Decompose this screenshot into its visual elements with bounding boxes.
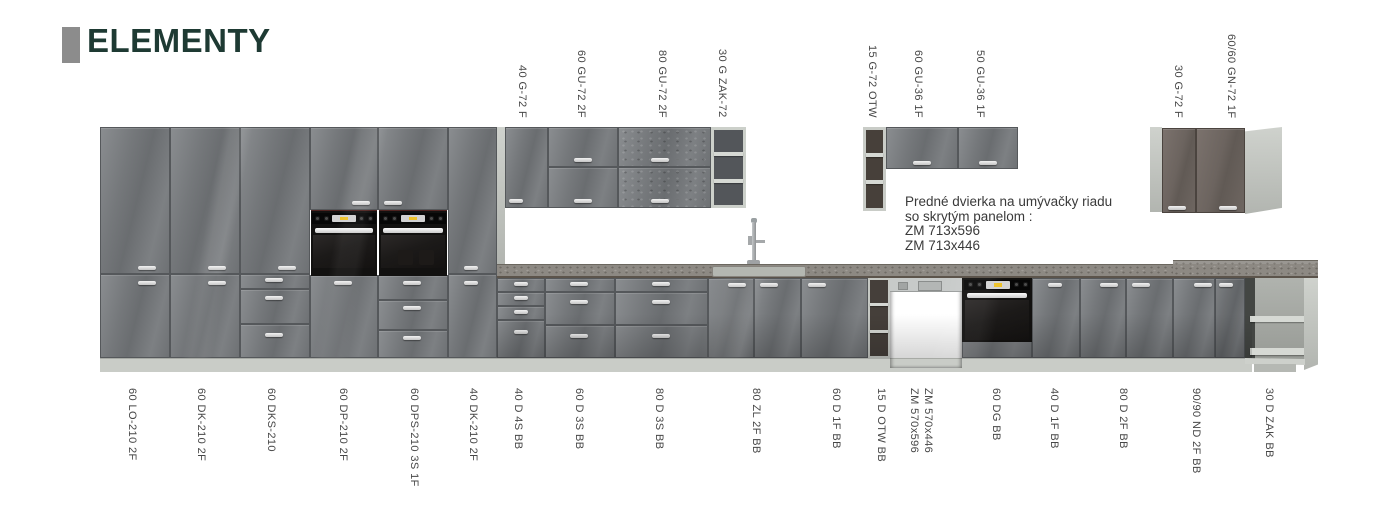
tall-cabinet-60-DP-210-2F-top-door	[310, 127, 378, 210]
tall-cabinet-60-DP-210-2F-bottom-door	[310, 275, 378, 358]
oven-handle	[315, 228, 373, 233]
door-handle	[464, 266, 478, 270]
faucet-spout	[756, 240, 765, 243]
door-handle	[352, 201, 370, 205]
shelf	[866, 180, 883, 184]
drawer-handle	[514, 282, 528, 286]
label-80-D-2F-BB: 80 D 2F BB	[1117, 388, 1129, 449]
tall-cabinet-60-DPS-210-drawer-1	[378, 275, 448, 300]
label-60-DK-210-2F: 60 DK-210 2F	[195, 388, 207, 461]
oven-knob	[1023, 282, 1028, 287]
drawer-handle	[514, 330, 528, 334]
label-60-DKS-210: 60 DKS-210	[265, 388, 277, 452]
oven-glass	[381, 235, 445, 268]
tall-cabinet-40-DK-210-2F-bottom-door	[448, 274, 497, 358]
door-handle	[138, 266, 156, 270]
base-cabinet-80-D-3S-drawer-3	[615, 325, 708, 358]
shelf	[714, 179, 743, 183]
door-handle	[509, 199, 523, 203]
base-cabinet-60-D-1F-door	[801, 278, 868, 358]
dishwasher-front-note: Predné dvierka na umývačky riadu so skry…	[905, 195, 1112, 253]
drawer-handle	[265, 278, 283, 282]
label-60-DPS-210-3S-1F: 60 DPS-210 3S 1F	[408, 388, 420, 487]
door-handle	[208, 281, 226, 285]
label-60-D-3S-BB: 60 D 3S BB	[573, 388, 585, 449]
drawer-handle	[652, 334, 670, 338]
tall-cabinet-60-DKS-210-door	[240, 127, 310, 274]
drawer-handle	[514, 310, 528, 314]
shelf	[714, 152, 743, 156]
faucet-lever	[748, 236, 752, 245]
label-60-60-GN-72-1F: 60/60 GN-72 1F	[1225, 34, 1237, 118]
drawer-handle	[570, 282, 588, 286]
drawer-handle	[265, 333, 283, 337]
label-15-G-72-OTW: 15 G-72 OTW	[866, 45, 878, 118]
base-cabinet-60-D-3S-drawer-3	[545, 325, 615, 358]
door-handle	[574, 199, 592, 203]
oven-glass	[313, 235, 375, 268]
label-60-GU-72-2F: 60 GU-72 2F	[575, 50, 587, 118]
base-cabinet-60-D-3S-drawer-2	[545, 292, 615, 325]
base-cabinet-80-D-2F-right-door	[1126, 278, 1173, 358]
tall-cabinet-60-DK-210-2F-top-door	[170, 127, 240, 274]
label-60-DG-BB: 60 DG BB	[990, 388, 1002, 441]
dishwasher-button	[898, 282, 908, 290]
tall-cabinet-60-DPS-210-drawer-3	[378, 330, 448, 358]
oven-knob	[968, 282, 973, 287]
shelf	[1250, 348, 1308, 355]
door-handle	[334, 281, 352, 285]
door-handle	[808, 283, 826, 287]
label-80-GU-72-2F: 80 GU-72 2F	[656, 50, 668, 118]
wall-open-shelf-15-G-72-OTW	[863, 127, 886, 211]
oven-knob	[392, 216, 397, 221]
door-handle	[728, 283, 746, 287]
oven-knob	[1014, 282, 1019, 287]
door-handle	[760, 283, 778, 287]
tall-cabinet-60-LO-210-2F-bottom-door	[100, 274, 170, 358]
dishwasher-panel	[890, 292, 962, 368]
oven-display	[401, 215, 425, 222]
catalog-page: ELEMENTY	[0, 0, 1382, 512]
door-handle	[1168, 206, 1186, 210]
tall-cabinet-60-DPS-210-drawer-2	[378, 300, 448, 330]
drawer-handle	[403, 336, 421, 340]
note-line: ZM 713x446	[905, 239, 1112, 254]
wall-open-shelf-30-G-ZAK-72	[711, 127, 746, 208]
tall-cabinet-60-LO-210-2F-top-door	[100, 127, 170, 274]
door-handle	[464, 281, 478, 285]
oven-handle	[383, 228, 443, 233]
end-panel	[1304, 278, 1318, 370]
label-ZM-570x446: ZM 570x446	[922, 388, 934, 453]
door-handle	[138, 281, 156, 285]
note-line: Predné dvierka na umývačky riadu	[905, 195, 1112, 210]
oven-knob	[324, 216, 329, 221]
door-handle	[1132, 283, 1150, 287]
oven-glass	[965, 300, 1029, 340]
label-60-D-1F-BB: 60 D 1F BB	[830, 388, 842, 449]
base-cabinet-80-D-2F-left-door	[1080, 278, 1126, 358]
tall-cabinet-60-DKS-210-drawer-3	[240, 324, 310, 358]
dishwasher-display	[918, 281, 942, 291]
drawer-handle	[265, 296, 283, 300]
tall-cabinet-60-DPS-210-top-door	[378, 127, 448, 210]
label-40-DK-210-2F: 40 DK-210 2F	[467, 388, 479, 461]
drawer-handle	[403, 306, 421, 310]
sink-cabinet-80-ZL-2F-left-door	[708, 278, 754, 358]
oven-display-light	[409, 217, 417, 220]
cup-silhouette	[419, 250, 434, 265]
wall-cabinet-30-G-72-F-door	[1162, 128, 1196, 213]
door-handle	[1219, 206, 1237, 210]
open-end-unit-plinth	[1254, 364, 1296, 372]
faucet-stem	[752, 222, 756, 264]
label-60-LO-210-2F: 60 LO-210 2F	[126, 388, 138, 461]
base-cabinet-40-D-1F-door	[1032, 278, 1080, 358]
drawer-handle	[514, 296, 528, 300]
door-handle	[1048, 283, 1062, 287]
plinth	[100, 358, 1252, 372]
drawer-handle	[403, 281, 421, 285]
door-handle	[979, 161, 997, 165]
page-title: ELEMENTY	[87, 22, 271, 60]
end-panel	[1150, 127, 1162, 212]
drawer-handle	[652, 282, 670, 286]
corner-base-90-90-ND-right-door	[1215, 278, 1245, 358]
door-handle	[208, 266, 226, 270]
label-30-D-ZAK-BB: 30 D ZAK BB	[1263, 388, 1275, 458]
base-open-shelf-15-D-OTW	[868, 278, 890, 358]
door-handle	[1194, 283, 1212, 287]
door-handle	[384, 201, 402, 205]
label-60-DP-210-2F: 60 DP-210 2F	[337, 388, 349, 461]
label-30-G-72-F: 30 G-72 F	[1172, 65, 1184, 118]
note-line: so skrytým panelom :	[905, 210, 1112, 225]
end-panel	[497, 127, 505, 265]
oven-knob	[368, 216, 373, 221]
oven-handle	[967, 293, 1027, 298]
label-40-D-1F-BB: 40 D 1F BB	[1048, 388, 1060, 449]
wall-cabinet-40-G-72-F-door	[505, 127, 548, 208]
tall-cabinet-60-DKS-210-drawer-2	[240, 289, 310, 324]
label-80-ZL-2F-BB: 80 ZL 2F BB	[750, 388, 762, 454]
sink-cabinet-80-ZL-2F-right-door	[754, 278, 801, 358]
oven-display-light	[340, 217, 348, 220]
door-handle	[1100, 283, 1118, 287]
door-handle	[651, 158, 669, 162]
label-90-90-ND-2F-BB: 90/90 ND 2F BB	[1190, 388, 1202, 474]
built-in-oven	[311, 210, 377, 276]
built-in-oven	[379, 210, 447, 276]
sink	[712, 266, 806, 277]
base-cabinet-40-D-4S-drawer-4	[497, 320, 545, 358]
dishwasher	[890, 278, 962, 368]
shelf	[866, 153, 883, 157]
label-ZM-570x596: ZM 570x596	[908, 388, 920, 453]
shelf	[870, 303, 888, 306]
base-cabinet-80-D-3S-drawer-2	[615, 292, 708, 325]
door-handle	[651, 199, 669, 203]
oven-display	[986, 281, 1010, 289]
label-50-GU-36-1F: 50 GU-36 1F	[974, 50, 986, 118]
corner-base-90-90-ND-left-door	[1173, 278, 1215, 358]
brand-bar	[62, 27, 80, 63]
note-line: ZM 713x596	[905, 224, 1112, 239]
wall-corner-cabinet-60-60-GN-72-1F-door	[1196, 128, 1245, 213]
corner-side-panel	[1245, 127, 1282, 214]
cup-silhouette	[398, 250, 413, 265]
label-80-D-3S-BB: 80 D 3S BB	[653, 388, 665, 449]
oven-knob	[429, 216, 434, 221]
door-handle	[278, 266, 296, 270]
drawer-handle	[570, 334, 588, 338]
oven-display	[332, 215, 356, 222]
door-handle	[913, 161, 931, 165]
tall-cabinet-60-DK-210-2F-bottom-door	[170, 274, 240, 358]
shelf	[1250, 316, 1308, 322]
label-40-D-4S-BB: 40 D 4S BB	[512, 388, 524, 449]
oven-knob	[359, 216, 364, 221]
label-15-D-OTW-BB: 15 D OTW BB	[875, 388, 887, 462]
oven-knob	[383, 216, 388, 221]
label-30-G-ZAK-72: 30 G ZAK-72	[716, 49, 728, 118]
base-oven	[962, 278, 1032, 342]
oven-knob	[438, 216, 443, 221]
door-handle	[1219, 283, 1233, 287]
oven-knob	[315, 216, 320, 221]
label-60-GU-36-1F: 60 GU-36 1F	[912, 50, 924, 118]
door-handle	[574, 158, 592, 162]
oven-knob	[977, 282, 982, 287]
drawer-handle	[570, 300, 588, 304]
tall-cabinet-40-DK-210-2F-top-door	[448, 127, 497, 274]
countertop-corner	[1173, 260, 1318, 278]
oven-display-light	[994, 283, 1002, 287]
shelf	[870, 330, 888, 333]
label-40-G-72-F: 40 G-72 F	[516, 65, 528, 118]
drawer-handle	[652, 300, 670, 304]
